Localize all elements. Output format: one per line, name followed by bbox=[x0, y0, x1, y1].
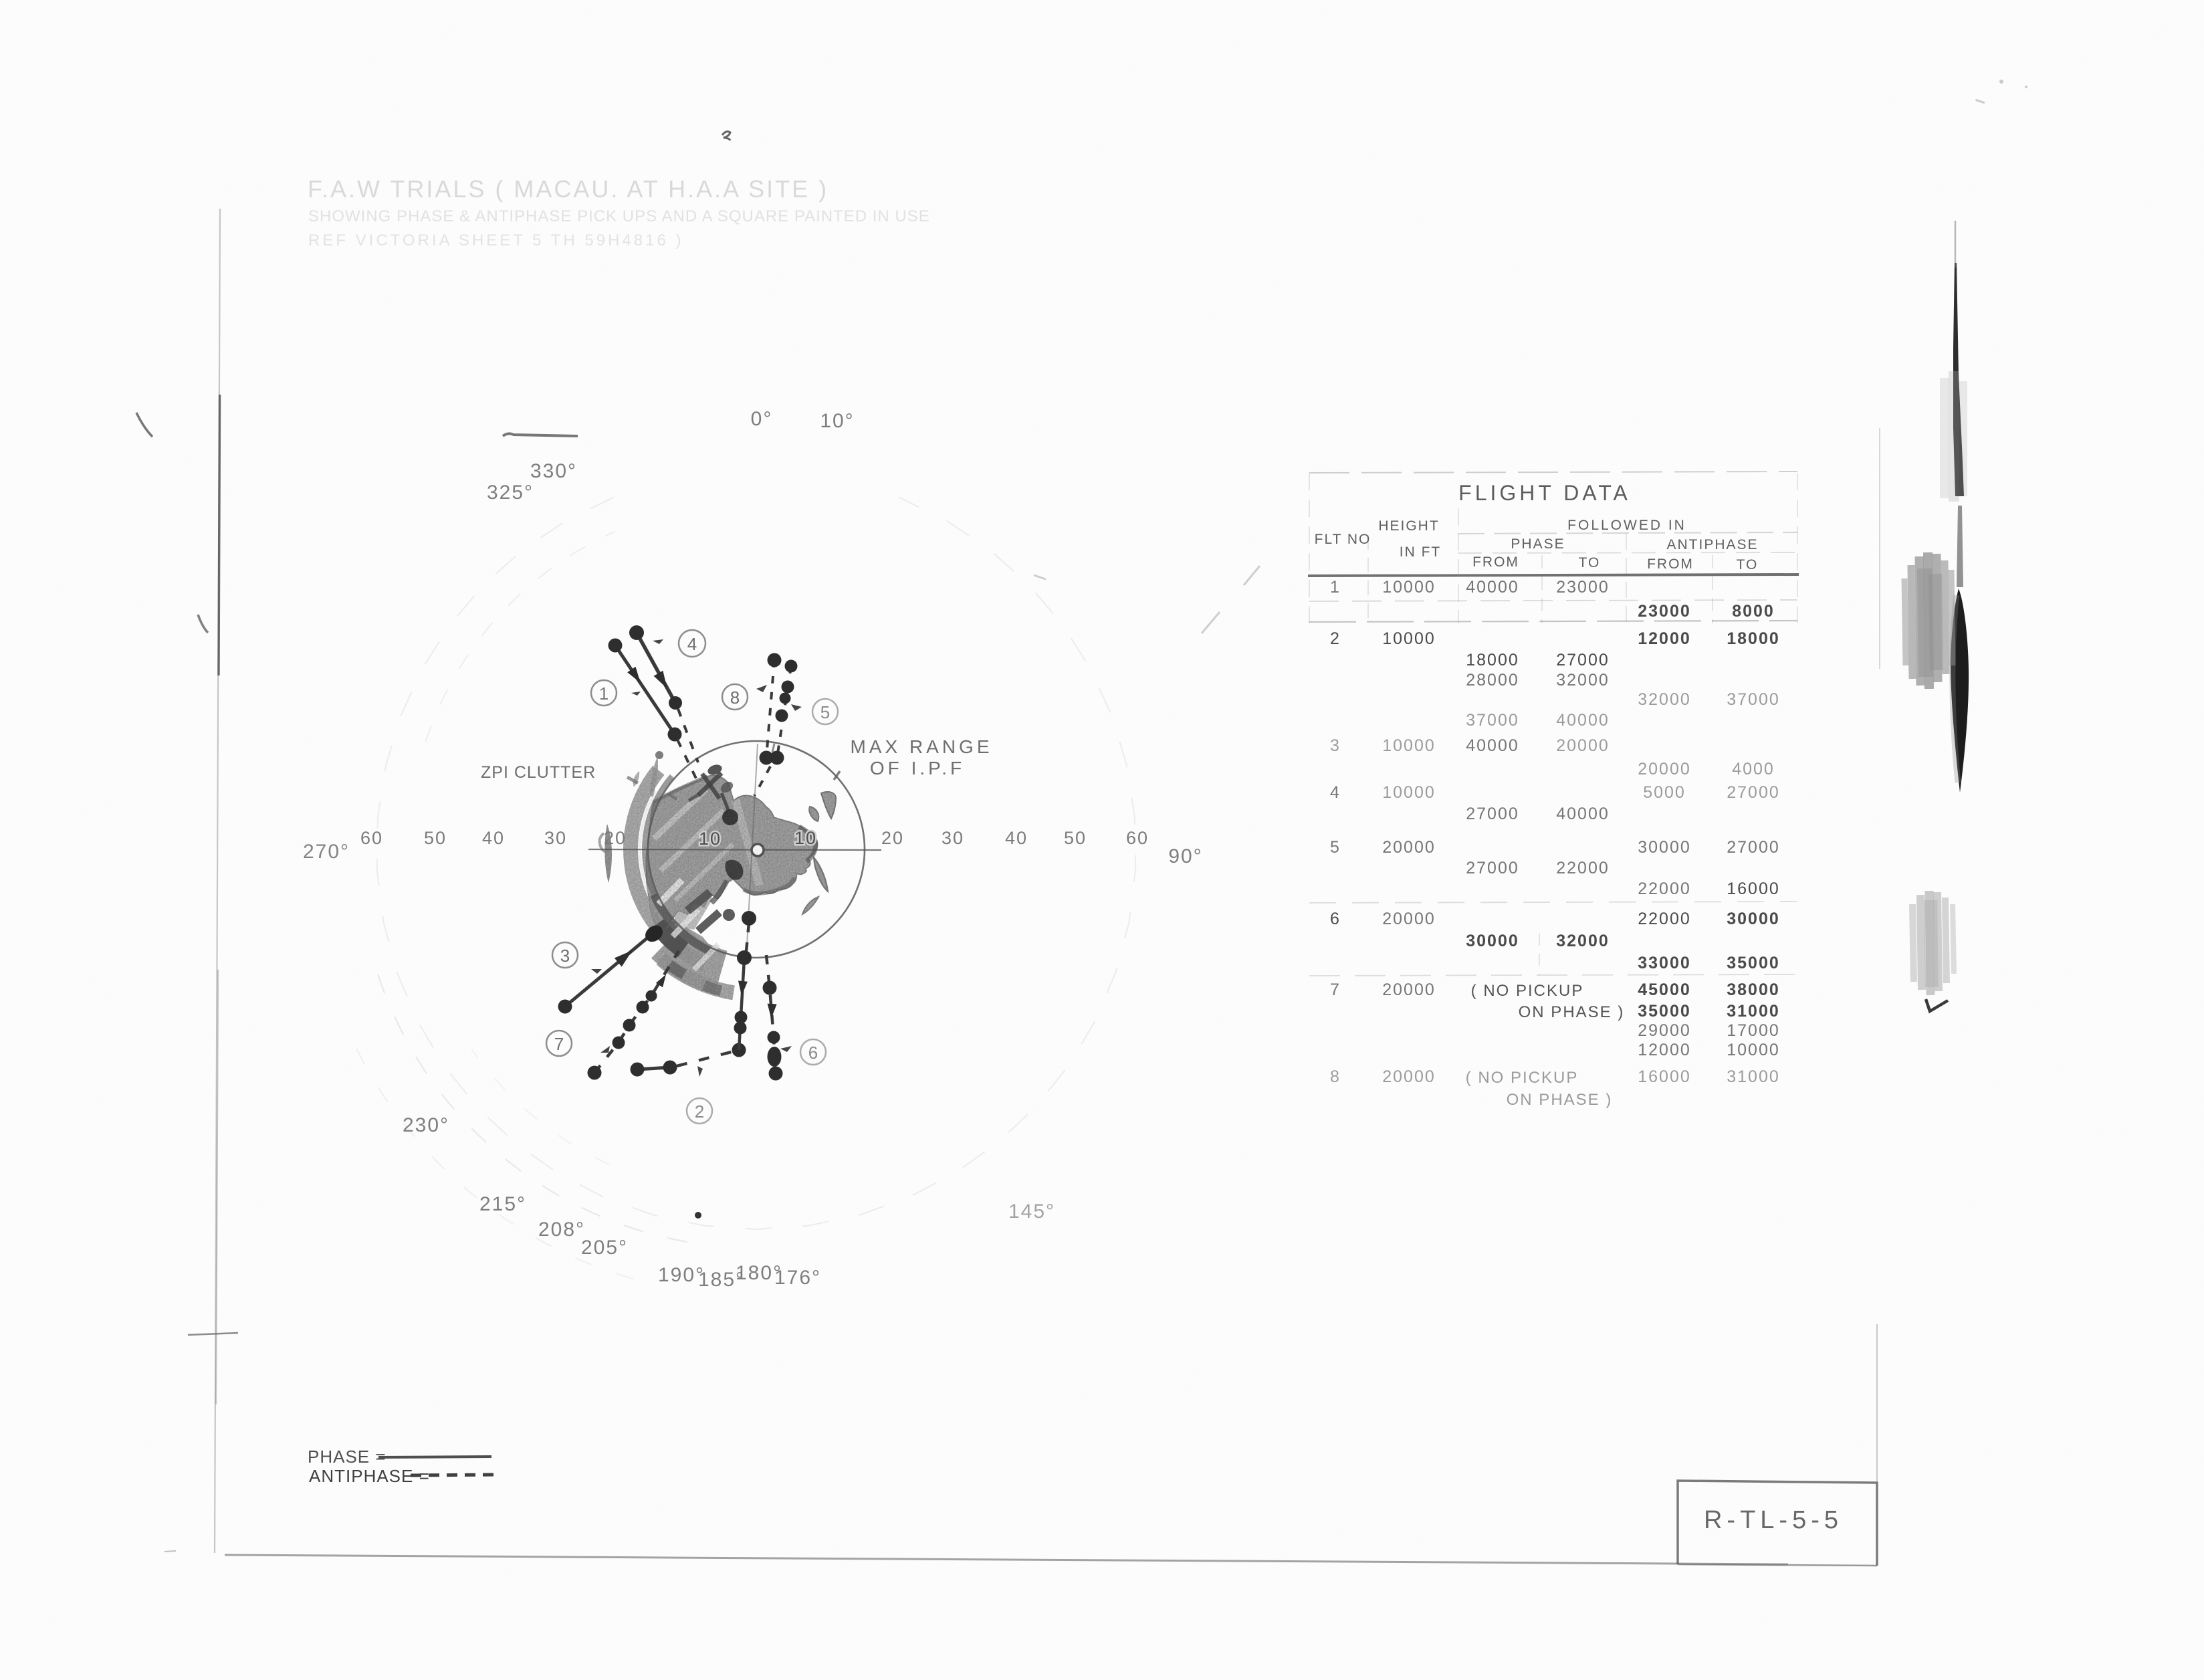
svg-text:18000: 18000 bbox=[1466, 651, 1519, 669]
svg-text:40: 40 bbox=[482, 828, 505, 848]
svg-text:FOLLOWED IN: FOLLOWED IN bbox=[1567, 518, 1686, 533]
svg-text:22000: 22000 bbox=[1638, 879, 1691, 898]
svg-text:16000: 16000 bbox=[1638, 1067, 1691, 1086]
svg-text:30000: 30000 bbox=[1638, 838, 1691, 857]
svg-text:8: 8 bbox=[1330, 1067, 1341, 1086]
svg-text:32000: 32000 bbox=[1556, 932, 1610, 950]
svg-text:208°: 208° bbox=[538, 1219, 585, 1241]
svg-text:30: 30 bbox=[942, 828, 964, 848]
svg-text:176°: 176° bbox=[774, 1267, 821, 1289]
svg-text:31000: 31000 bbox=[1727, 1067, 1780, 1086]
svg-text:40: 40 bbox=[1005, 828, 1028, 848]
svg-text:MAX RANGE: MAX RANGE bbox=[850, 736, 992, 757]
svg-text:32000: 32000 bbox=[1556, 671, 1610, 690]
svg-text:40000: 40000 bbox=[1466, 578, 1519, 597]
svg-text:16000: 16000 bbox=[1727, 879, 1780, 898]
svg-text:3: 3 bbox=[1330, 736, 1341, 755]
svg-text:IN FT: IN FT bbox=[1400, 544, 1442, 560]
svg-text:230°: 230° bbox=[403, 1114, 449, 1136]
svg-text:1: 1 bbox=[599, 684, 609, 704]
svg-text:F.A.W TRIALS ( MACAU. AT H.: F.A.W TRIALS ( MACAU. AT H.A.A SITE ) bbox=[308, 175, 829, 203]
svg-text:20000: 20000 bbox=[1382, 1067, 1436, 1086]
svg-text:8: 8 bbox=[730, 688, 740, 708]
svg-text:PHASE =: PHASE = bbox=[308, 1447, 387, 1467]
svg-text:22000: 22000 bbox=[1638, 910, 1691, 928]
svg-text:28000: 28000 bbox=[1466, 671, 1519, 690]
svg-text:FLT NO: FLT NO bbox=[1315, 532, 1371, 547]
svg-text:5000: 5000 bbox=[1643, 783, 1686, 802]
svg-text:TO: TO bbox=[1579, 555, 1601, 570]
svg-text:10000: 10000 bbox=[1727, 1041, 1780, 1059]
svg-text:6: 6 bbox=[1330, 910, 1341, 928]
svg-text:4: 4 bbox=[1330, 783, 1341, 802]
svg-text:32000: 32000 bbox=[1638, 690, 1691, 709]
svg-text:90°: 90° bbox=[1168, 845, 1202, 867]
svg-text:5: 5 bbox=[1330, 838, 1341, 857]
svg-text:20000: 20000 bbox=[1638, 760, 1691, 778]
svg-text:R-TL-5-5: R-TL-5-5 bbox=[1704, 1506, 1843, 1534]
svg-text:10000: 10000 bbox=[1382, 783, 1436, 802]
svg-text:27000: 27000 bbox=[1466, 859, 1519, 877]
svg-text:PHASE: PHASE bbox=[1511, 536, 1565, 552]
svg-text:20000: 20000 bbox=[1382, 980, 1436, 999]
svg-text:23000: 23000 bbox=[1638, 602, 1691, 621]
svg-text:37000: 37000 bbox=[1727, 690, 1780, 709]
svg-text:27000: 27000 bbox=[1727, 783, 1780, 802]
svg-text:40000: 40000 bbox=[1556, 805, 1610, 823]
svg-text:330°: 330° bbox=[530, 460, 577, 482]
svg-text:10000: 10000 bbox=[1382, 736, 1436, 755]
svg-text:45000: 45000 bbox=[1638, 980, 1691, 999]
svg-text:10000: 10000 bbox=[1382, 578, 1436, 597]
svg-text:215°: 215° bbox=[479, 1193, 526, 1215]
svg-text:31000: 31000 bbox=[1727, 1002, 1780, 1021]
svg-text:12000: 12000 bbox=[1638, 629, 1691, 648]
svg-text:HEIGHT: HEIGHT bbox=[1378, 518, 1439, 534]
svg-text:( NO PICKUP: ( NO PICKUP bbox=[1471, 982, 1584, 1000]
svg-text:60: 60 bbox=[1126, 828, 1149, 848]
svg-text:35000: 35000 bbox=[1638, 1002, 1691, 1021]
svg-text:40000: 40000 bbox=[1556, 711, 1610, 730]
svg-text:4: 4 bbox=[687, 634, 697, 654]
svg-text:12000: 12000 bbox=[1638, 1041, 1691, 1059]
svg-text:20000: 20000 bbox=[1382, 910, 1436, 928]
svg-text:145°: 145° bbox=[1008, 1200, 1055, 1223]
svg-text:5: 5 bbox=[820, 702, 830, 722]
svg-text:10°: 10° bbox=[820, 410, 854, 432]
svg-text:( NO PICKUP: ( NO PICKUP bbox=[1466, 1069, 1579, 1087]
svg-text:ANTIPHASE: ANTIPHASE bbox=[1666, 537, 1758, 552]
svg-text:8000: 8000 bbox=[1732, 602, 1775, 621]
svg-text:18000: 18000 bbox=[1727, 629, 1780, 648]
svg-text:37000: 37000 bbox=[1466, 711, 1519, 730]
svg-text:ON PHASE ): ON PHASE ) bbox=[1507, 1091, 1613, 1109]
svg-text:38000: 38000 bbox=[1727, 980, 1780, 999]
svg-text:23000: 23000 bbox=[1556, 578, 1610, 597]
svg-text:TO: TO bbox=[1737, 557, 1759, 572]
svg-text:270°: 270° bbox=[303, 841, 350, 863]
svg-text:FROM: FROM bbox=[1647, 556, 1694, 572]
svg-text:27000: 27000 bbox=[1556, 651, 1610, 669]
svg-text:27000: 27000 bbox=[1466, 805, 1519, 823]
svg-text:FLIGHT DATA: FLIGHT DATA bbox=[1458, 481, 1631, 505]
svg-text:4000: 4000 bbox=[1732, 760, 1775, 778]
svg-text:35000: 35000 bbox=[1727, 954, 1780, 972]
svg-text:325°: 325° bbox=[487, 482, 534, 504]
svg-text:REF VICTORIA SHEET 5 TH: REF VICTORIA SHEET 5 TH 59H4816 ) bbox=[308, 231, 684, 249]
svg-text:20000: 20000 bbox=[1382, 838, 1436, 857]
svg-text:17000: 17000 bbox=[1727, 1021, 1780, 1040]
svg-text:205°: 205° bbox=[581, 1237, 628, 1259]
svg-text:0°: 0° bbox=[751, 408, 773, 430]
svg-text:OF I.P.F: OF I.P.F bbox=[870, 758, 965, 778]
svg-text:SHOWING PHASE & ANTIPHASE: SHOWING PHASE & ANTIPHASE PICK UPS AND A… bbox=[308, 207, 930, 225]
svg-text:27000: 27000 bbox=[1727, 838, 1780, 857]
svg-text:33000: 33000 bbox=[1638, 954, 1691, 972]
svg-text:1: 1 bbox=[1330, 578, 1341, 597]
svg-text:ZPI CLUTTER: ZPI CLUTTER bbox=[481, 763, 596, 782]
svg-text:29000: 29000 bbox=[1638, 1021, 1691, 1040]
svg-text:7: 7 bbox=[1330, 980, 1341, 999]
svg-text:50: 50 bbox=[424, 828, 447, 848]
svg-text:7: 7 bbox=[554, 1034, 564, 1054]
svg-text:22000: 22000 bbox=[1556, 859, 1610, 877]
svg-text:10: 10 bbox=[794, 828, 817, 848]
svg-text:20000: 20000 bbox=[1556, 736, 1610, 755]
svg-text:2: 2 bbox=[1330, 629, 1341, 648]
svg-text:20: 20 bbox=[881, 828, 904, 848]
svg-text:20: 20 bbox=[604, 828, 627, 848]
svg-text:10: 10 bbox=[699, 829, 722, 849]
svg-text:30: 30 bbox=[544, 828, 567, 848]
svg-text:40000: 40000 bbox=[1466, 736, 1519, 755]
svg-text:3: 3 bbox=[560, 946, 570, 966]
svg-text:30000: 30000 bbox=[1466, 932, 1519, 950]
svg-text:50: 50 bbox=[1064, 828, 1087, 848]
svg-text:60: 60 bbox=[360, 828, 383, 848]
svg-text:30000: 30000 bbox=[1727, 910, 1780, 928]
svg-text:FROM: FROM bbox=[1472, 554, 1519, 570]
svg-text:6: 6 bbox=[808, 1043, 818, 1063]
svg-text:10000: 10000 bbox=[1382, 629, 1436, 648]
svg-text:2: 2 bbox=[695, 1101, 704, 1122]
svg-text:ON PHASE ): ON PHASE ) bbox=[1519, 1003, 1625, 1021]
